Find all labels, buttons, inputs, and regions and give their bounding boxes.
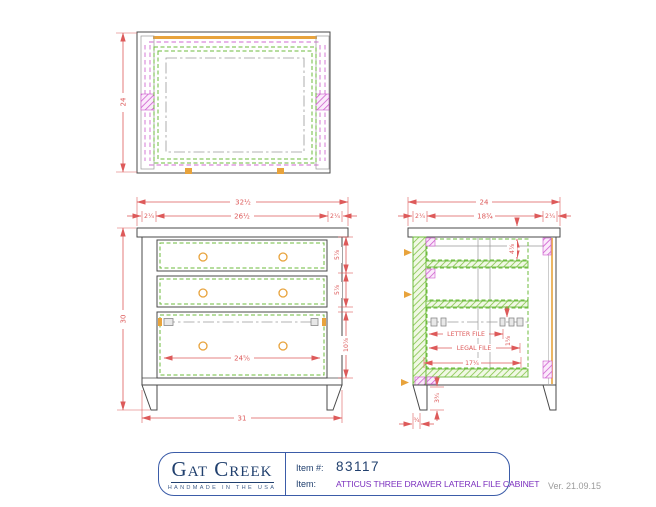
- front-view: 32½ 2¼ 26½ 2¼: [117, 197, 357, 423]
- glide-block-right: [277, 168, 284, 174]
- knob: [279, 342, 287, 350]
- front-drawer-2: [157, 276, 327, 307]
- svg-text:¾: ¾: [414, 417, 420, 424]
- svg-text:1⅝: 1⅝: [505, 336, 512, 346]
- title-block: Gat Creek HANDMADE IN THE USA Item #: 83…: [158, 452, 510, 496]
- item-number-value: 83117: [336, 459, 380, 474]
- svg-text:24⅝: 24⅝: [234, 355, 250, 363]
- svg-text:5⅞: 5⅞: [334, 285, 341, 295]
- item-name-label: Item:: [296, 479, 336, 489]
- knob: [199, 342, 207, 350]
- top-view: 24: [116, 32, 330, 174]
- svg-text:3¾: 3¾: [434, 393, 441, 403]
- rail-bracket-left: [158, 318, 162, 326]
- knob: [199, 253, 207, 261]
- datum-arrow: [404, 249, 412, 256]
- brand-logo: Gat Creek: [172, 459, 273, 480]
- knob: [199, 289, 207, 297]
- datum-arrow: [401, 379, 409, 386]
- svg-text:30: 30: [120, 315, 128, 324]
- version-text: Ver. 21.09.15: [548, 481, 601, 491]
- svg-text:2¼: 2¼: [144, 213, 154, 220]
- svg-text:18¾: 18¾: [477, 213, 493, 221]
- svg-text:2¼: 2¼: [330, 213, 340, 220]
- front-top-board: [137, 228, 348, 237]
- item-name-value: ATTICUS THREE DRAWER LATERAL FILE CABINE…: [336, 479, 539, 489]
- knob: [279, 253, 287, 261]
- brand-panel: Gat Creek HANDMADE IN THE USA: [159, 453, 286, 495]
- item-name-row: Item: ATTICUS THREE DRAWER LATERAL FILE …: [296, 479, 503, 489]
- front-leg-left: [142, 385, 157, 410]
- item-panel: Item #: 83117 Item: ATTICUS THREE DRAWER…: [286, 453, 509, 495]
- svg-text:2¼: 2¼: [545, 213, 555, 220]
- front-drawer-1: [157, 240, 327, 271]
- item-number-row: Item #: 83117: [296, 459, 503, 474]
- front-leg-right: [327, 385, 342, 410]
- svg-text:24: 24: [120, 97, 128, 106]
- glide-block-left: [185, 168, 192, 174]
- dim-top-depth: 24: [116, 33, 137, 172]
- technical-drawing-canvas: 24 32½ 2¼ 26½ 2¼: [0, 0, 656, 450]
- svg-text:31: 31: [238, 415, 247, 423]
- brand-rule: [171, 482, 274, 483]
- side-leg-front: [413, 385, 427, 410]
- side-top-board: [408, 228, 560, 237]
- rail-bracket-right: [322, 318, 326, 326]
- svg-text:10⅞: 10⅞: [343, 338, 350, 352]
- svg-text:LEGAL FILE: LEGAL FILE: [457, 345, 492, 352]
- dim-foot-taper: ¾: [399, 413, 434, 429]
- side-view: 24 2¼ 18¾ 2¼: [398, 197, 571, 429]
- svg-text:24: 24: [480, 199, 489, 207]
- dim-front-base-width: 31: [142, 390, 342, 423]
- front-file-drawer: 24⅝: [157, 312, 327, 378]
- svg-text:17¼: 17¼: [465, 360, 479, 367]
- item-number-label: Item #:: [296, 463, 336, 473]
- brand-tagline: HANDMADE IN THE USA: [168, 485, 277, 491]
- svg-text:5⅞: 5⅞: [334, 250, 341, 260]
- dim-side-panel-row: 2¼ 18¾ 2¼: [398, 211, 571, 222]
- drawing-sheet: 24 32½ 2¼ 26½ 2¼: [0, 0, 656, 507]
- svg-text:32½: 32½: [235, 199, 251, 207]
- side-leg-back: [543, 385, 556, 410]
- svg-text:4⅞: 4⅞: [509, 244, 516, 254]
- svg-text:LETTER FILE: LETTER FILE: [447, 331, 485, 338]
- dim-front-opening-row: 2¼ 26½ 2¼: [127, 211, 357, 222]
- svg-text:26½: 26½: [234, 213, 250, 221]
- svg-text:2¼: 2¼: [415, 213, 425, 220]
- datum-arrow: [404, 291, 412, 298]
- knob: [279, 289, 287, 297]
